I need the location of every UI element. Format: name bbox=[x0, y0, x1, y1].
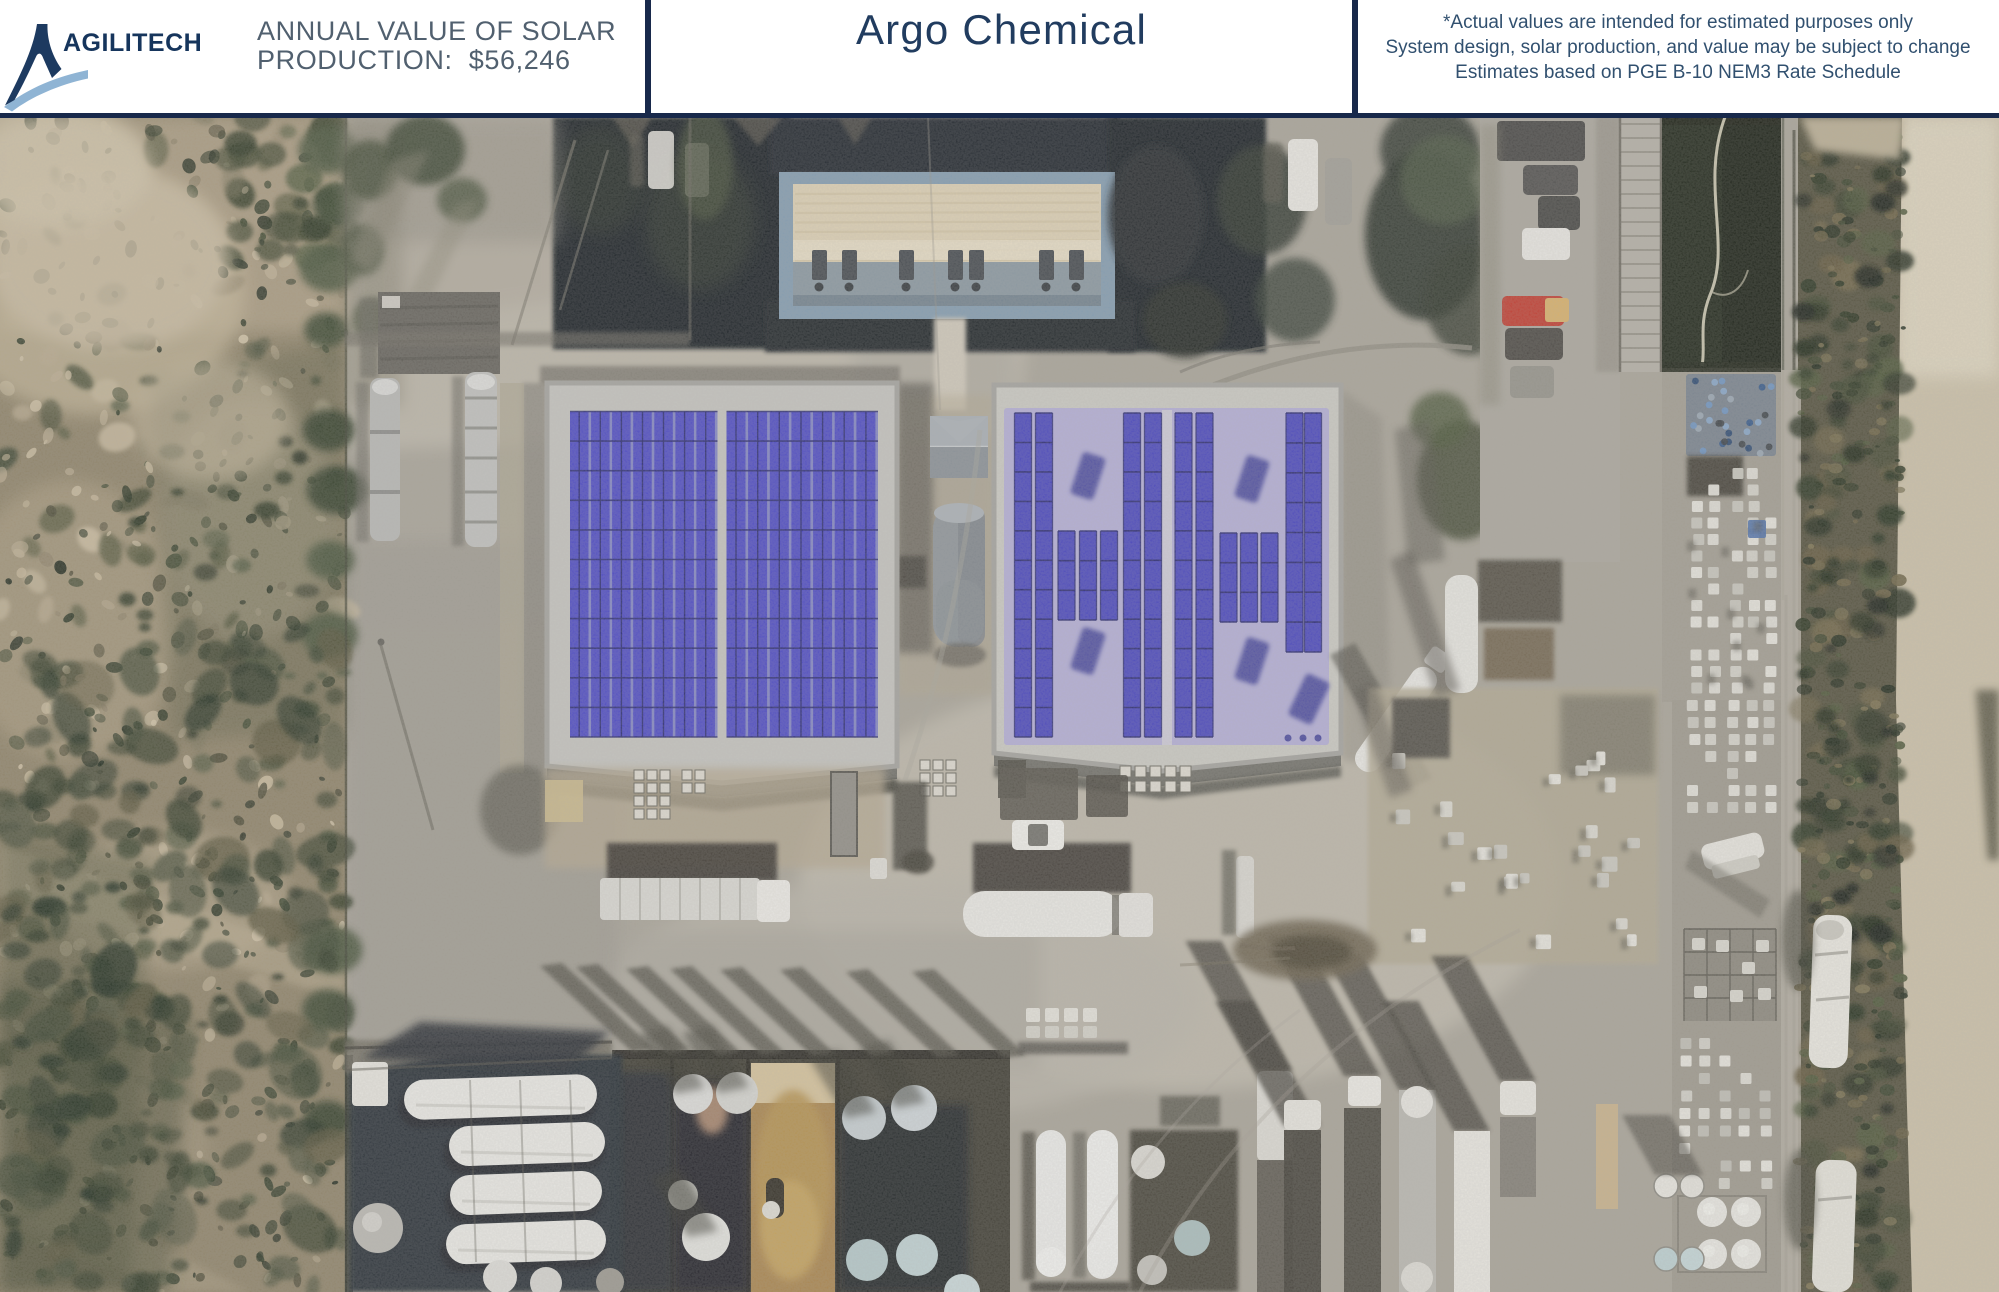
svg-text:AGILITECH: AGILITECH bbox=[63, 29, 202, 57]
